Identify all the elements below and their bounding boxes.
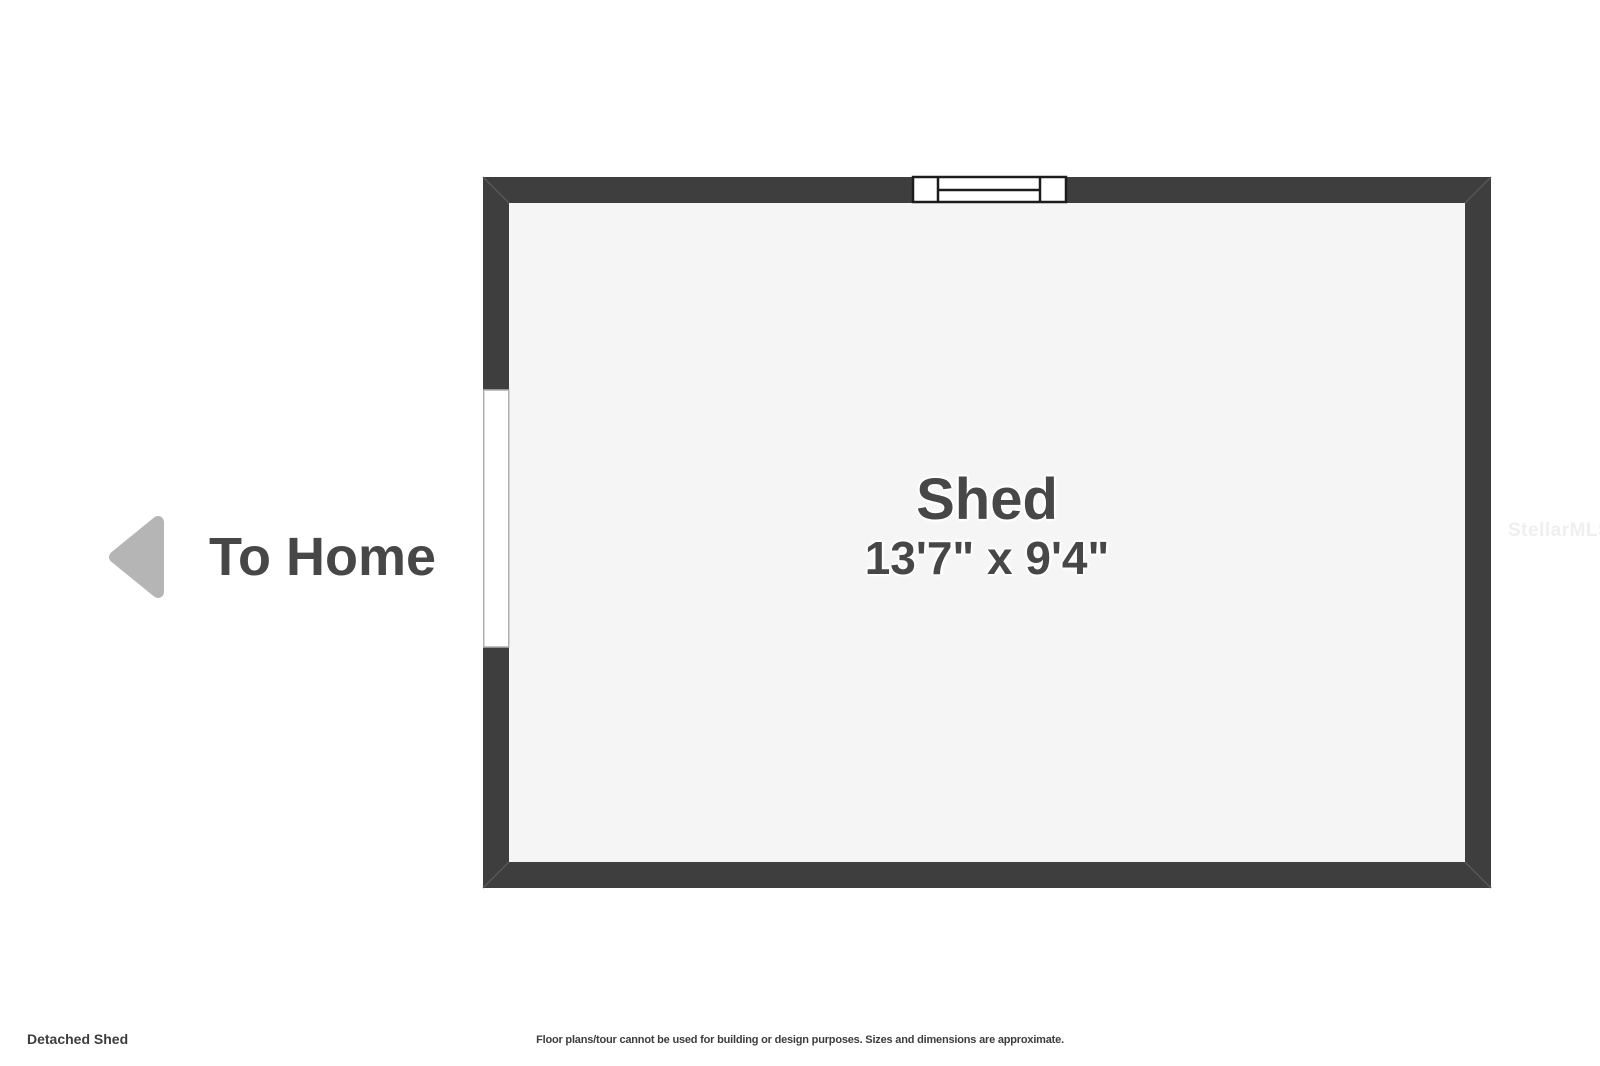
to-home-label: To Home xyxy=(209,526,436,588)
to-home-arrow-icon xyxy=(105,512,165,602)
disclaimer-text: Floor plans/tour cannot be used for buil… xyxy=(536,1034,1064,1046)
left-triangle-arrow xyxy=(115,522,158,592)
floorplan-page: Shed 13'7" x 9'4" To Home StellarMLS Det… xyxy=(0,0,1600,1066)
to-home-indicator: To Home xyxy=(105,512,436,602)
window-icon xyxy=(913,177,1066,202)
room-dimensions-label: 13'7" x 9'4" xyxy=(865,532,1110,585)
stellar-mls-watermark: StellarMLS xyxy=(1508,520,1600,542)
room-name-label: Shed xyxy=(865,469,1110,532)
plan-title: Detached Shed xyxy=(27,1031,128,1047)
room-label-block: Shed 13'7" x 9'4" xyxy=(865,469,1110,585)
door-opening xyxy=(484,390,509,647)
